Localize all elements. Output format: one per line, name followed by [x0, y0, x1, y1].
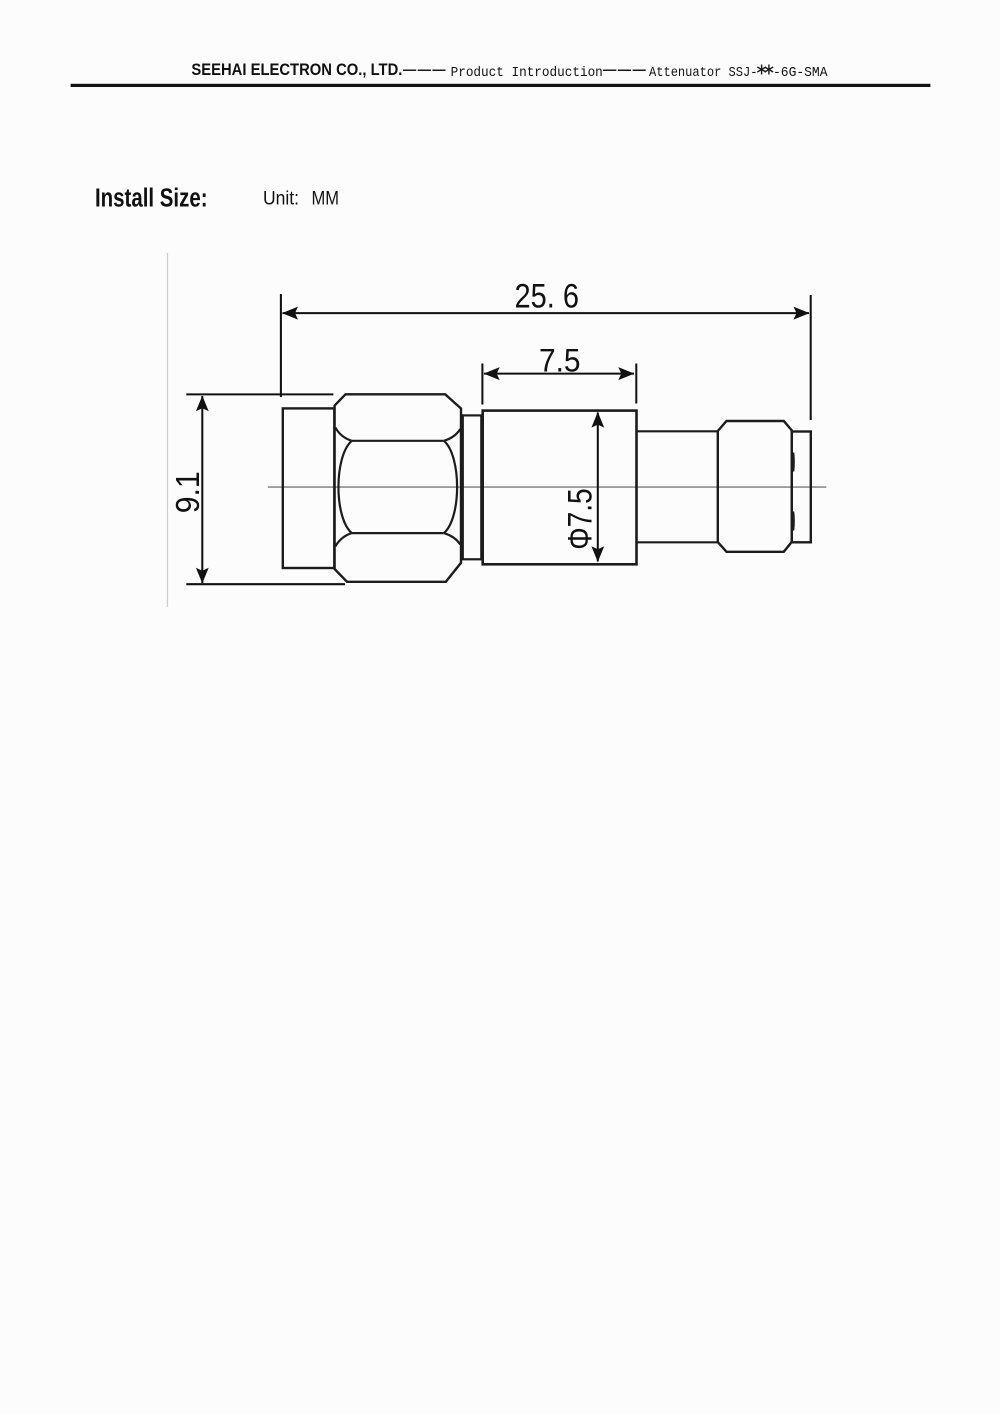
- svg-text:MM: MM: [312, 189, 340, 210]
- svg-text:25. 6: 25. 6: [515, 278, 580, 316]
- svg-text:Install Size:: Install Size:: [95, 183, 208, 213]
- svg-text:9.1: 9.1: [169, 471, 206, 513]
- svg-text:SEEHAI ELECTRON CO., LTD.: SEEHAI ELECTRON CO., LTD.: [191, 60, 402, 79]
- svg-text:Product Introduction: Product Introduction: [451, 65, 603, 81]
- svg-text:Φ7.5: Φ7.5: [561, 488, 599, 550]
- svg-text:Attenuator SSJ-: Attenuator SSJ-: [649, 65, 758, 81]
- svg-text:-6G-SMA: -6G-SMA: [773, 65, 828, 81]
- svg-text:7.5: 7.5: [539, 342, 581, 378]
- svg-text:Unit:: Unit:: [263, 189, 299, 210]
